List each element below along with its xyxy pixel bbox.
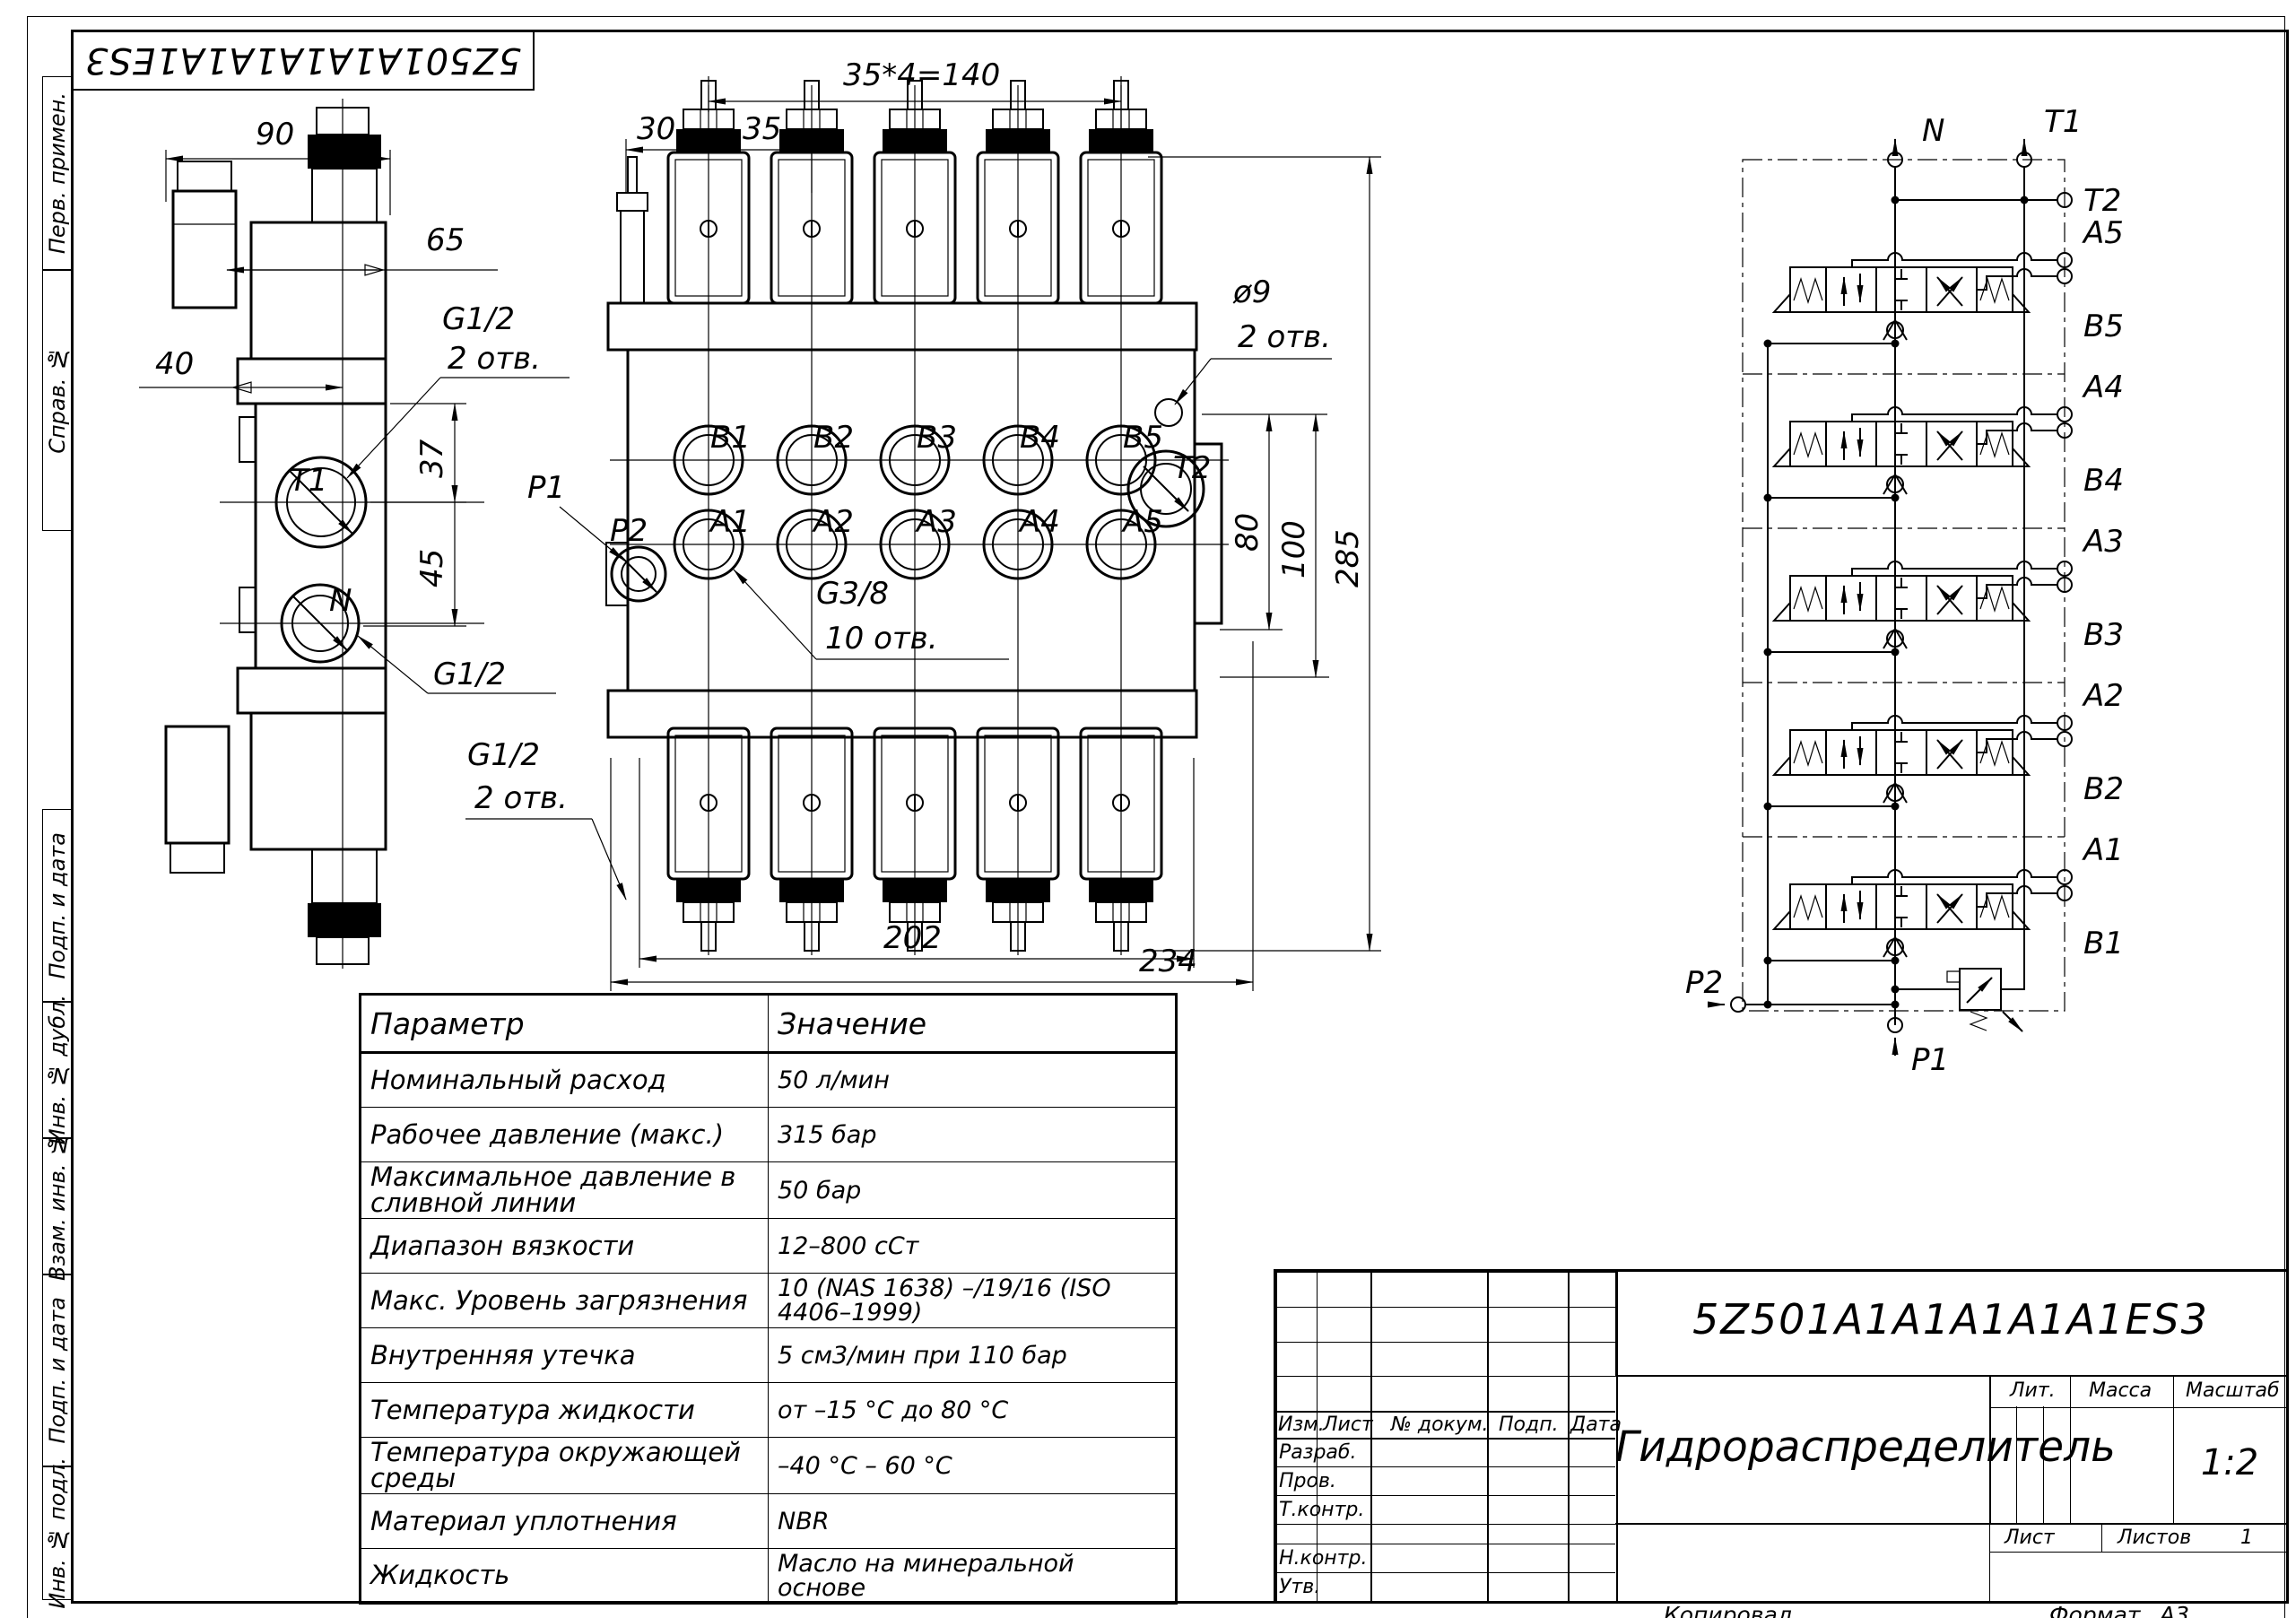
port-b2-label: B2 (813, 420, 854, 456)
dim-285: 285 (1330, 529, 1366, 587)
dim-80: 80 (1230, 513, 1265, 552)
corner-designation-text: 5Z501A1A1A1A1A1ES3 (84, 39, 521, 81)
sch-p2-label: P2 (1685, 965, 1723, 1001)
port-a4-label: A4 (1018, 504, 1060, 540)
tb-row-tkontr: Т.контр. (1279, 1499, 1364, 1521)
dim-90: 90 (256, 117, 294, 152)
margin-label: Подп. и дата (45, 832, 70, 979)
footer-format-label: Формат (2049, 1602, 2140, 1618)
sch-t2-label: T2 (2083, 183, 2121, 219)
tb-col-data: Дата (1570, 1414, 1622, 1436)
value-cell: 50 бар (769, 1162, 1177, 1219)
sch-p1-label: P1 (1911, 1042, 1949, 1078)
param-cell: Материал уплотнения (361, 1494, 769, 1549)
sch-a4-label: A4 (2082, 370, 2124, 405)
tb-listov-label: Листов (2118, 1527, 2191, 1549)
port-b1-label: B1 (710, 420, 751, 456)
schematic-labels: N T1 T2 A5 B5 A4 B4 A3 B3 A2 B2 A1 B1 P2… (1685, 104, 2124, 1078)
corner-designation-stamp: 5Z501A1A1A1A1A1ES3 (71, 30, 535, 91)
tb-vline (2070, 1375, 2071, 1523)
schematic-valve-sections (1764, 253, 2073, 965)
front-view-drawing: B1 B2 B3 B4 B5 A1 A2 A3 A4 A5 P2 T2 (520, 49, 1426, 991)
dim-45: 45 (414, 549, 450, 587)
tb-hline (1276, 1342, 1615, 1343)
note-g38-qty: 10 отв. (825, 621, 938, 657)
tb-col-izm: Изм. (1278, 1414, 1325, 1436)
value-cell: 50 л/мин (769, 1053, 1177, 1108)
dim-100: 100 (1276, 520, 1312, 578)
front-dia-note: ø9 2 отв. (1175, 274, 1332, 404)
margin-label: Подп. и дата (45, 1297, 70, 1444)
tb-col-podp: Подп. (1499, 1414, 1559, 1436)
param-cell: Макс. Уровень загрязнения (361, 1274, 769, 1328)
table-header-row: Параметр Значение (361, 995, 1177, 1053)
tb-hline (1276, 1544, 1615, 1544)
tb-lit-label: Лит. (2010, 1379, 2056, 1402)
tb-listov-value: 1 (2240, 1527, 2253, 1549)
side-view-ports: T1 N (276, 457, 366, 662)
param-cell: Температура окружающей среды (361, 1438, 769, 1494)
tb-col-ndoc: № докум. (1391, 1414, 1488, 1436)
tb-list-label: Лист (2005, 1527, 2055, 1549)
dim-65: 65 (426, 222, 465, 258)
tb-hline (1276, 1572, 1615, 1573)
note-dia9: ø9 (1232, 274, 1271, 310)
sch-b2-label: B2 (2083, 771, 2124, 807)
value-cell: от –15 °С до 80 °С (769, 1383, 1177, 1438)
tb-vline (1487, 1272, 1489, 1601)
tb-designation: 5Z501A1A1A1A1A1ES3 (1615, 1295, 2286, 1344)
schematic-buses (1768, 139, 2072, 1025)
margin-label: Взам. инв. № (45, 1132, 70, 1281)
dim-pitch: 35*4=140 (843, 57, 1000, 93)
port-a2-label: A2 (812, 504, 854, 540)
port-a3-label: A3 (915, 504, 957, 540)
margin-box-sprav-no: Справ. № (42, 269, 73, 531)
title-block: Изм. Лист № докум. Подп. Дата Разраб. Пр… (1274, 1269, 2289, 1604)
front-port-p2: P2 (610, 513, 665, 601)
footer-kopiroval: Копировал (1664, 1602, 1792, 1618)
note-dia9-qty: 2 отв. (1238, 319, 1331, 355)
dim-35: 35 (743, 111, 781, 147)
front-inlet-stem (617, 157, 648, 303)
param-cell: Рабочее давление (макс.) (361, 1108, 769, 1162)
margin-box-podp-data-1: Подп. и дата (42, 809, 73, 1003)
port-p1-label: P1 (527, 470, 565, 506)
sch-b5-label: B5 (2083, 309, 2124, 344)
sch-b1-label: B1 (2083, 926, 2124, 961)
value-cell: –40 °С – 60 °С (769, 1438, 1177, 1494)
param-cell: Диапазон вязкости (361, 1219, 769, 1274)
sch-b3-label: B3 (2083, 617, 2124, 653)
sch-a3-label: A3 (2082, 524, 2124, 560)
margin-box-podp-data-2: Подп. и дата (42, 1274, 73, 1467)
tb-row-razrab: Разраб. (1279, 1441, 1356, 1464)
tb-massa-label: Масса (2089, 1379, 2152, 1402)
relief-valve-symbol (1892, 969, 2025, 1031)
tb-hline (1276, 1466, 1615, 1467)
col-header-value: Значение (769, 995, 1177, 1053)
tb-vline (2101, 1523, 2102, 1552)
front-thread-note-g38: G3/8 10 отв. (734, 570, 1009, 659)
table-row: Диапазон вязкости12–800 сСт (361, 1219, 1177, 1274)
value-cell: 12–800 сСт (769, 1219, 1177, 1274)
table-row: Номинальный расход50 л/мин (361, 1053, 1177, 1108)
tb-masshtab-label: Масштаб (2186, 1379, 2280, 1402)
front-ports-a: A1 A2 A3 A4 A5 (674, 504, 1163, 578)
dim-37: 37 (414, 439, 450, 478)
sch-a1-label: A1 (2082, 832, 2124, 868)
tb-vline (2016, 1406, 2017, 1523)
port-b4-label: B4 (1020, 420, 1060, 456)
table-row: Максимальное давление в сливной линии50 … (361, 1162, 1177, 1219)
table-row: Рабочее давление (макс.)315 бар (361, 1108, 1177, 1162)
param-cell: Максимальное давление в сливной линии (361, 1162, 769, 1219)
margin-label: Перв. примен. (45, 92, 70, 254)
port-p2-label: P2 (610, 513, 648, 549)
dim-234: 234 (1139, 944, 1197, 979)
sch-a5-label: A5 (2082, 215, 2124, 251)
table-row: ЖидкостьМасло на минеральной основе (361, 1549, 1177, 1604)
port-a1-label: A1 (709, 504, 751, 540)
value-cell: 5 см3/мин при 110 бар (769, 1328, 1177, 1383)
table-row: Макс. Уровень загрязнения10 (NAS 1638) –… (361, 1274, 1177, 1328)
tb-hline (1276, 1495, 1615, 1496)
param-cell: Номинальный расход (361, 1053, 769, 1108)
note-g12-top: G1/2 (442, 301, 515, 337)
tb-hline (1276, 1376, 1615, 1377)
margin-label: Справ. № (45, 346, 70, 454)
margin-box-inv-dubl: Инв. № дубл. (42, 1001, 73, 1139)
tb-col-list: Лист (1323, 1414, 1373, 1436)
margin-box-inv-podl: Инв. № подл. (42, 1466, 73, 1600)
tb-vline (1370, 1272, 1372, 1601)
margin-box-perv-primen: Перв. примен. (42, 76, 73, 271)
sch-b4-label: B4 (2083, 463, 2124, 499)
param-cell: Внутренняя утечка (361, 1328, 769, 1383)
schematic-bottom (1712, 969, 2024, 1056)
tb-hline (1276, 1411, 1615, 1413)
front-ports-b: B1 B2 B3 B4 B5 (674, 420, 1163, 494)
sch-n-label: N (1922, 113, 1944, 149)
tb-vline (1568, 1272, 1570, 1601)
table-row: Температура окружающей среды–40 °С – 60 … (361, 1438, 1177, 1494)
port-t2-label: T2 (1173, 450, 1211, 486)
tb-hline (1276, 1307, 1615, 1308)
tb-row-prov: Пров. (1279, 1470, 1336, 1492)
tb-hline (1276, 1524, 1615, 1525)
dim-202: 202 (883, 920, 942, 956)
note-g12-mid: G1/2 (433, 657, 506, 692)
side-port-n-label: N (329, 583, 352, 619)
port-b5-label: B5 (1123, 420, 1163, 456)
tb-row-nkontr: Н.контр. (1279, 1547, 1367, 1570)
table-row: Материал уплотненияNBR (361, 1494, 1177, 1549)
param-cell: Жидкость (361, 1549, 769, 1604)
margin-label: Инв. № дубл. (45, 995, 70, 1144)
side-port-t1-label: T1 (290, 463, 327, 499)
table-row: Температура жидкостиот –15 °С до 80 °С (361, 1383, 1177, 1438)
margin-label: Инв. № подл. (45, 1457, 70, 1609)
table-row: Внутренняя утечка5 см3/мин при 110 бар (361, 1328, 1177, 1383)
side-view-dimensions: 90 65 40 37 45 (139, 117, 498, 626)
drawing-sheet: Перв. примен. Справ. № Подп. и дата Инв.… (0, 0, 2296, 1618)
tb-document-name: Гидрораспределитель (1615, 1422, 1989, 1472)
sch-a2-label: A2 (2082, 678, 2124, 714)
port-a5-label: A5 (1121, 504, 1163, 540)
dim-30: 30 (637, 111, 675, 147)
col-header-param: Параметр (361, 995, 769, 1053)
margin-box-vzam-inv: Взам. инв. № (42, 1137, 73, 1275)
tb-row-utv: Утв. (1279, 1576, 1320, 1598)
value-cell: 315 бар (769, 1108, 1177, 1162)
hydraulic-schematic: N T1 T2 A5 B5 A4 B4 A3 B3 A2 B2 A1 B1 P2… (1682, 85, 2220, 1108)
port-b3-label: B3 (917, 420, 957, 456)
tb-vline (2043, 1406, 2044, 1523)
value-cell: Масло на минеральной основе (769, 1549, 1177, 1604)
tb-scale-value: 1:2 (2173, 1442, 2286, 1483)
tb-hline (1276, 1438, 1615, 1440)
dim-40: 40 (155, 346, 194, 382)
value-cell: 10 (NAS 1638) –/19/16 (ISO 4406–1999) (769, 1274, 1177, 1328)
footer-format-value: А3 (2160, 1602, 2189, 1618)
sch-t1-label: T1 (2044, 104, 2082, 140)
value-cell: NBR (769, 1494, 1177, 1549)
parameter-table: Параметр Значение Номинальный расход50 л… (359, 993, 1178, 1598)
param-cell: Температура жидкости (361, 1383, 769, 1438)
tb-bottom-left-cell (1615, 1523, 1990, 1602)
note-g38: G3/8 (816, 576, 889, 612)
